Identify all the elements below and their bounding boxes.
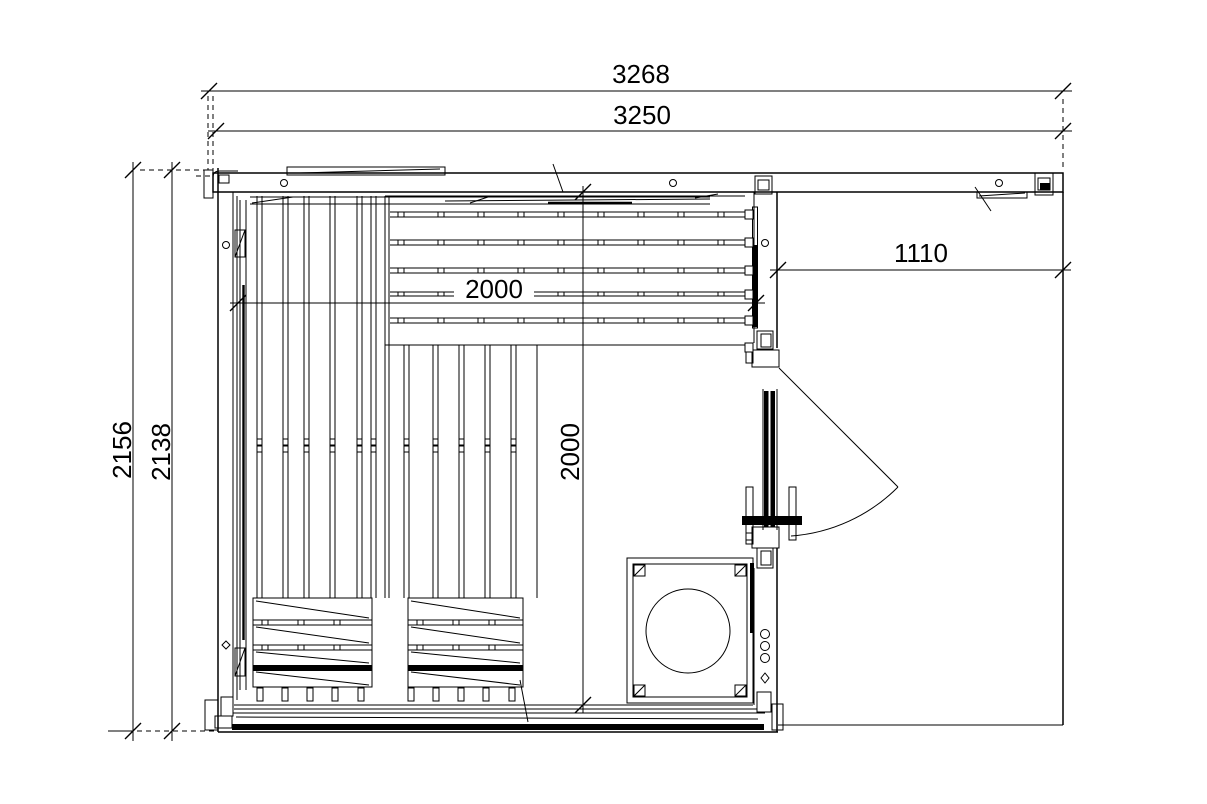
dim-label-1110: 1110 — [894, 238, 948, 268]
floor-plan-svg: 3268 3250 2156 2138 1110 2000 — [0, 0, 1207, 804]
dimension-room-depth: 2000 — [552, 184, 591, 713]
dimension-cabin-width: 3250 — [208, 100, 1072, 139]
left-wall — [204, 168, 246, 732]
dim-label-3268: 3268 — [612, 59, 670, 89]
upper-bench-board-gaps — [390, 212, 745, 323]
right-duckboard — [408, 598, 523, 687]
door-leaf — [763, 389, 777, 530]
dim-label-3250: 3250 — [613, 100, 671, 130]
dim-label-2156: 2156 — [107, 421, 137, 479]
heater — [627, 558, 754, 703]
door-open-position-line — [779, 368, 898, 487]
door-frame-bottom-post — [746, 527, 779, 568]
door-swing — [779, 368, 898, 536]
dimension-overall-depth: 2156 — [107, 162, 141, 741]
door-swing-arc — [791, 487, 898, 536]
dimension-front-section: 1110 — [770, 238, 1071, 278]
duckboard-feet — [257, 688, 515, 701]
upper-bench — [385, 196, 753, 598]
dimension-overall-width: 3268 — [201, 59, 1072, 99]
heater-stove-circle — [646, 589, 730, 673]
center-bench — [404, 345, 537, 598]
left-duckboard — [253, 598, 372, 687]
dim-label-2000-vertical: 2000 — [555, 423, 585, 481]
dimension-cabin-depth: 2138 — [146, 162, 180, 741]
left-bench — [257, 196, 376, 598]
bottom-wall — [205, 680, 783, 732]
terrace — [778, 192, 1063, 725]
dim-label-2138: 2138 — [146, 423, 176, 481]
sauna-floor-plan: 3268 3250 2156 2138 1110 2000 — [0, 0, 1207, 804]
dim-label-2000-horizontal: 2000 — [465, 274, 523, 304]
